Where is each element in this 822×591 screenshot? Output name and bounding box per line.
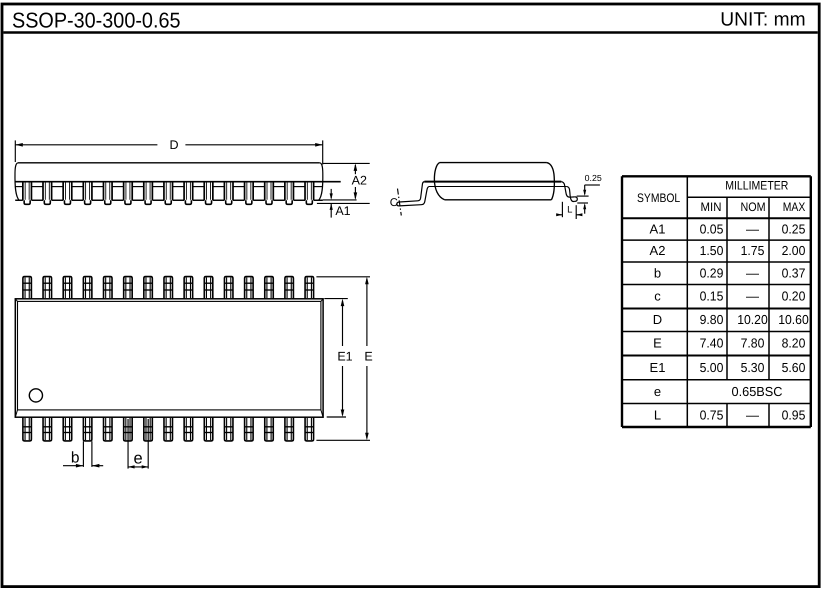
- svg-text:c: c: [654, 289, 661, 304]
- svg-text:0.75: 0.75: [700, 407, 724, 422]
- svg-text:—: —: [746, 221, 759, 236]
- svg-text:A1: A1: [650, 221, 666, 236]
- svg-text:0.20: 0.20: [782, 289, 806, 304]
- svg-text:SSOP-30-300-0.65: SSOP-30-300-0.65: [12, 9, 181, 33]
- svg-text:0.29: 0.29: [700, 265, 724, 280]
- svg-text:—: —: [746, 407, 759, 422]
- svg-text:L: L: [567, 204, 572, 215]
- svg-text:MIN: MIN: [701, 200, 722, 214]
- svg-text:b: b: [654, 265, 661, 280]
- svg-text:10.20: 10.20: [737, 312, 768, 327]
- svg-text:NOM: NOM: [740, 200, 765, 214]
- svg-text:0.37: 0.37: [782, 265, 806, 280]
- svg-text:E1: E1: [650, 360, 666, 375]
- svg-text:7.40: 7.40: [700, 336, 724, 351]
- svg-text:A1: A1: [335, 204, 350, 218]
- svg-text:9.80: 9.80: [700, 312, 724, 327]
- svg-text:D: D: [653, 312, 662, 327]
- svg-text:e: e: [654, 384, 661, 399]
- svg-text:8.20: 8.20: [782, 336, 806, 351]
- svg-text:7.80: 7.80: [741, 336, 765, 351]
- svg-text:E1: E1: [337, 349, 352, 363]
- svg-text:0.95: 0.95: [782, 407, 806, 422]
- svg-text:—: —: [746, 265, 759, 280]
- svg-text:e: e: [134, 449, 143, 467]
- svg-text:UNIT: mm: UNIT: mm: [720, 10, 805, 31]
- svg-text:A2: A2: [352, 174, 367, 188]
- svg-text:E: E: [653, 336, 662, 351]
- svg-text:MILLIMETER: MILLIMETER: [725, 179, 788, 193]
- svg-text:1.75: 1.75: [741, 243, 765, 258]
- svg-text:5.60: 5.60: [782, 360, 806, 375]
- svg-text:SYMBOL: SYMBOL: [637, 191, 680, 205]
- svg-text:2.00: 2.00: [782, 243, 806, 258]
- svg-text:L: L: [654, 407, 661, 422]
- svg-text:E: E: [364, 349, 372, 363]
- svg-text:C: C: [390, 197, 398, 209]
- svg-text:10.60: 10.60: [778, 312, 809, 327]
- svg-text:—: —: [746, 289, 759, 304]
- svg-text:b: b: [71, 450, 80, 467]
- svg-text:0.25: 0.25: [782, 221, 806, 236]
- svg-text:1.50: 1.50: [700, 243, 724, 258]
- svg-text:0.05: 0.05: [700, 221, 724, 236]
- svg-text:5.00: 5.00: [700, 360, 724, 375]
- svg-text:A2: A2: [650, 243, 666, 258]
- svg-text:0.25: 0.25: [585, 173, 602, 183]
- svg-text:D: D: [169, 138, 178, 152]
- svg-text:0.15: 0.15: [700, 289, 724, 304]
- svg-text:5.30: 5.30: [741, 360, 765, 375]
- svg-text:MAX: MAX: [783, 200, 806, 214]
- svg-text:0.65BSC: 0.65BSC: [732, 384, 783, 399]
